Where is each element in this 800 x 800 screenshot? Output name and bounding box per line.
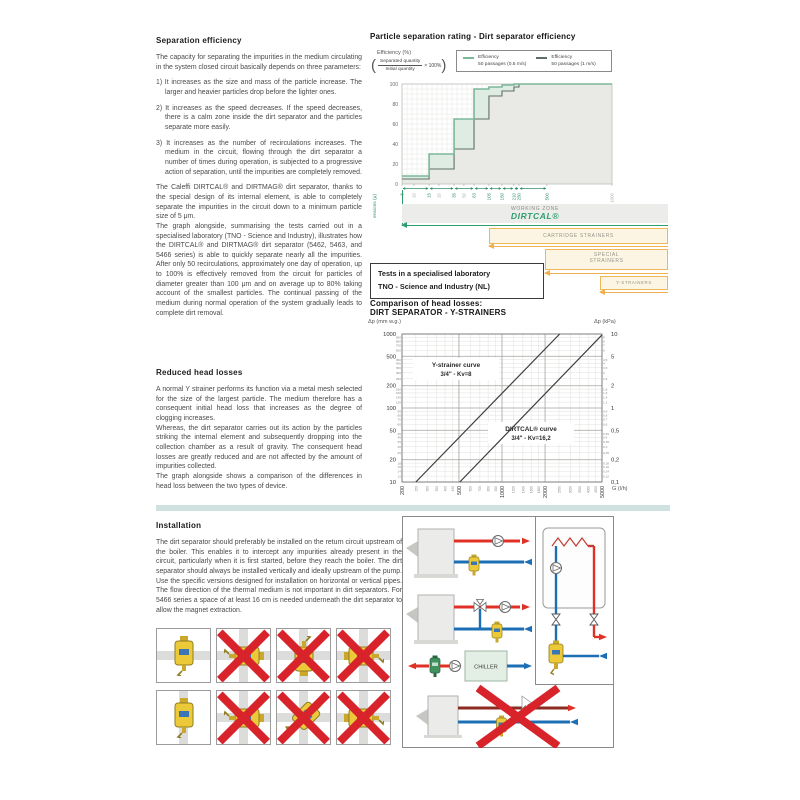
cartridge-strainers-label: CARTRIDGE STRAINERS [490, 229, 667, 243]
svg-text:1200: 1200 [512, 486, 516, 493]
svg-text:0,14: 0,14 [603, 469, 609, 473]
head-loss-chart: Y-strainer curve3/4" - Kv=8DIRTCAL® curv… [366, 316, 678, 512]
chart2-x-axis-labels: 2005001000200050002503003504004506007008… [400, 486, 606, 498]
svg-text:450: 450 [451, 486, 455, 492]
svg-text:6: 6 [603, 349, 605, 353]
svg-text:20: 20 [437, 192, 442, 197]
svg-text:0,6: 0,6 [603, 423, 608, 427]
svg-text:7: 7 [603, 344, 605, 348]
installation-pictogram [276, 690, 331, 745]
special-strainers-arrow [545, 273, 668, 274]
chart2-left-axis-labels: 1000500200100502010900800700600450400350… [383, 332, 401, 486]
test-box-line2: TNO - Science and Industry (NL) [378, 281, 536, 294]
chart2-title-line1: Comparison of head losses: [370, 299, 482, 308]
svg-text:300: 300 [426, 486, 430, 492]
svg-text:30: 30 [398, 445, 402, 449]
svg-text:10: 10 [412, 192, 417, 197]
svg-text:200: 200 [386, 384, 396, 390]
chart1-x-axis-labels: 51015203550631051502102505001000 [400, 184, 615, 203]
chart2-right-axis-labels: 105210,50,20,198764,543,532,51,81,61,41,… [603, 332, 619, 486]
section-divider [156, 505, 670, 511]
svg-text:105: 105 [487, 192, 492, 200]
svg-text:0,25: 0,25 [603, 451, 609, 455]
svg-text:400: 400 [443, 486, 447, 492]
svg-text:0,12: 0,12 [603, 474, 609, 478]
test-box-line1: Tests in a specialised laboratory [378, 268, 536, 281]
paragraph: Whereas, the dirt separator carries out … [156, 424, 362, 472]
svg-text:2500: 2500 [557, 486, 561, 493]
list-item: 1) It increases as the size and mass of … [156, 78, 362, 97]
svg-text:5: 5 [611, 354, 614, 360]
paragraph: The graph alongside shows a comparison o… [156, 472, 362, 491]
paragraph: The Caleffi DIRTCAL® and DIRTMAG® dirt s… [156, 183, 362, 222]
svg-text:800: 800 [487, 486, 491, 492]
svg-text:700: 700 [396, 344, 401, 348]
svg-text:100: 100 [390, 82, 399, 88]
svg-text:140: 140 [396, 395, 401, 399]
svg-text:4000: 4000 [587, 486, 591, 493]
chart1-x-axis-title: Particle dimensions (μ) [372, 194, 378, 218]
svg-text:35: 35 [398, 440, 402, 444]
svg-text:3: 3 [603, 371, 605, 375]
y-strainers-label: Y-STRAINERS [601, 277, 667, 289]
working-zone-arrow [402, 225, 668, 226]
svg-text:0,2: 0,2 [611, 458, 619, 464]
svg-text:50: 50 [462, 192, 467, 197]
svg-text:120: 120 [396, 400, 401, 404]
svg-text:40: 40 [392, 142, 398, 148]
svg-text:0,3: 0,3 [603, 445, 608, 449]
svg-text:35: 35 [452, 192, 457, 197]
svg-text:1: 1 [611, 406, 614, 412]
installation-pictogram-grid [156, 628, 391, 745]
svg-text:14: 14 [398, 469, 402, 473]
section-separation-efficiency: Separation efficiency The capacity for s… [156, 36, 362, 324]
chart1-interval-arrows [403, 187, 547, 190]
svg-text:200: 200 [400, 486, 406, 495]
laboratory-test-box: Tests in a specialised laboratory TNO - … [370, 263, 544, 299]
svg-text:350: 350 [435, 486, 439, 492]
svg-text:2000: 2000 [543, 486, 549, 498]
svg-text:1800: 1800 [537, 486, 541, 493]
svg-text:1000: 1000 [610, 192, 615, 202]
svg-text:12: 12 [398, 474, 402, 478]
paragraph: The graph alongside, summarising the tes… [156, 222, 362, 319]
svg-text:10: 10 [390, 480, 396, 486]
installation-pictogram [216, 690, 271, 745]
svg-text:1400: 1400 [521, 486, 525, 493]
working-zone-band: WORKING ZONE DIRTCAL® [402, 204, 668, 223]
svg-text:3500: 3500 [578, 486, 582, 493]
efficiency-step-chart: 0204060801005101520355063105150210250500… [366, 48, 678, 218]
svg-text:150: 150 [500, 192, 505, 200]
installation-pictogram [216, 628, 271, 683]
list-item: 3) It increases as the number of recircu… [156, 139, 362, 178]
paragraph: A normal Y strainer performs its functio… [156, 385, 362, 424]
y-strainers-band: Y-STRAINERS [600, 276, 668, 290]
svg-text:0: 0 [395, 182, 398, 188]
svg-text:700: 700 [478, 486, 482, 492]
svg-text:15: 15 [427, 192, 432, 197]
svg-text:10: 10 [611, 332, 617, 338]
svg-text:600: 600 [396, 349, 401, 353]
section-reduced-head-losses: Reduced head losses A normal Y strainer … [156, 368, 362, 497]
installation-pictogram [156, 628, 211, 683]
svg-text:4500: 4500 [594, 486, 598, 493]
chiller-label: CHILLER [474, 665, 498, 671]
svg-text:250: 250 [414, 486, 418, 492]
svg-text:1,4: 1,4 [603, 395, 608, 399]
svg-text:2,5: 2,5 [603, 377, 608, 381]
list-item: 2) It increases as the speed decreases. … [156, 104, 362, 133]
svg-text:0,5: 0,5 [611, 428, 619, 434]
svg-text:3/4" - Kv=8: 3/4" - Kv=8 [440, 372, 472, 378]
svg-text:0,7: 0,7 [603, 418, 608, 422]
cartridge-strainers-band: CARTRIDGE STRAINERS [489, 228, 668, 244]
chart2-grid [402, 334, 602, 482]
svg-text:3,5: 3,5 [603, 366, 608, 370]
svg-text:900: 900 [494, 486, 498, 492]
installation-pictogram [156, 690, 211, 745]
dirtcal-logo: DIRTCAL® [402, 212, 668, 221]
y-strainers-arrow [600, 292, 668, 293]
svg-text:100: 100 [386, 406, 396, 412]
svg-text:63: 63 [472, 192, 477, 197]
section-heading: Reduced head losses [156, 368, 362, 377]
svg-text:1600: 1600 [530, 486, 534, 493]
svg-text:1,2: 1,2 [603, 400, 608, 404]
svg-text:500: 500 [457, 486, 463, 495]
svg-text:1000: 1000 [500, 486, 506, 498]
svg-text:300: 300 [396, 371, 401, 375]
svg-text:500: 500 [545, 192, 550, 200]
svg-text:3000: 3000 [569, 486, 573, 493]
svg-text:1000: 1000 [383, 332, 396, 338]
dirt-separator-icon [171, 636, 197, 676]
svg-text:350: 350 [396, 366, 401, 370]
svg-text:250: 250 [517, 192, 522, 200]
chart1-title: Particle separation rating - Dirt separa… [370, 32, 670, 41]
svg-text:60: 60 [392, 122, 398, 128]
svg-text:0,35: 0,35 [603, 440, 609, 444]
dirt-separator-icon [171, 698, 197, 738]
svg-text:20: 20 [390, 458, 396, 464]
svg-text:0,1: 0,1 [611, 480, 619, 486]
section-heading: Installation [156, 521, 201, 530]
cartridge-strainers-arrow [489, 246, 668, 247]
svg-text:25: 25 [398, 451, 402, 455]
installation-pictogram [336, 690, 391, 745]
section-heading: Separation efficiency [156, 36, 362, 45]
svg-text:Y-strainer curve: Y-strainer curve [432, 362, 481, 369]
svg-text:250: 250 [396, 377, 401, 381]
svg-text:5000: 5000 [600, 486, 606, 498]
svg-text:600: 600 [469, 486, 473, 492]
installation-pictogram [276, 628, 331, 683]
special-strainers-label-2: STRAINERS [546, 258, 667, 264]
svg-text:80: 80 [392, 102, 398, 108]
installation-pictogram [336, 628, 391, 683]
installation-paragraph: The dirt separator should preferably be … [156, 538, 402, 615]
svg-text:50: 50 [390, 428, 396, 434]
svg-text:2: 2 [611, 384, 614, 390]
chart2-curve-labels: Y-strainer curve3/4" - Kv=8DIRTCAL® curv… [413, 358, 574, 444]
svg-text:20: 20 [392, 162, 398, 168]
installation-schematic: CHILLER [402, 516, 614, 748]
chart1-y-axis-labels: 020406080100 [390, 82, 399, 188]
svg-text:60: 60 [398, 423, 402, 427]
svg-text:70: 70 [398, 418, 402, 422]
paragraph: The capacity for separating the impuriti… [156, 53, 362, 72]
svg-text:3/4" - Kv=16,2: 3/4" - Kv=16,2 [511, 436, 551, 442]
special-strainers-band: SPECIAL STRAINERS [545, 249, 668, 270]
svg-text:500: 500 [386, 354, 396, 360]
